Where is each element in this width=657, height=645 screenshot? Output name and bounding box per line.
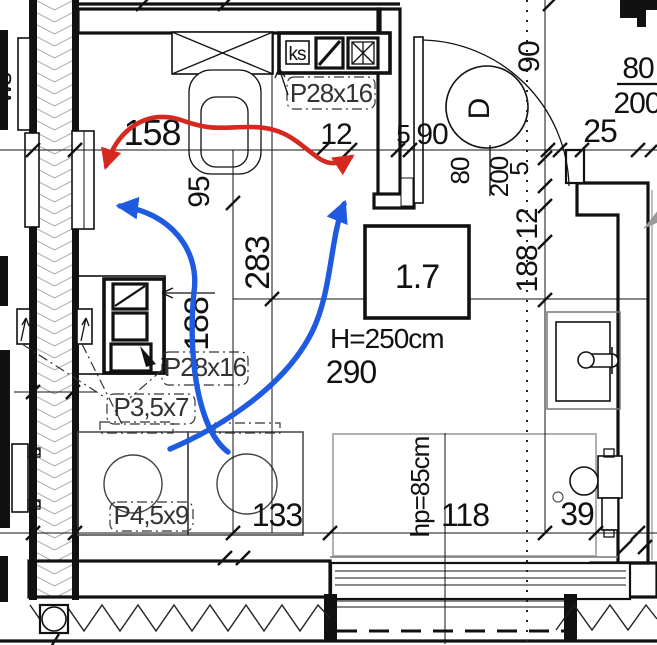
label-p28-mid: P28x16 — [164, 352, 247, 382]
dim-283: 283 — [239, 236, 277, 290]
window-frame — [331, 563, 630, 599]
left-room-frame — [18, 38, 30, 130]
room-height-label: H=250cm — [330, 323, 444, 354]
left-wall-core — [37, 0, 72, 600]
dim-290: 290 — [326, 354, 377, 390]
tr-size-200: 200 — [613, 87, 657, 120]
floor-plan-drawing: 1.7 H=250cm 290 158 12 5 90 25 80 200 90… — [0, 0, 657, 645]
bottom-window-zone — [0, 434, 657, 645]
door-size-80: 80 — [445, 157, 475, 184]
dim-133: 133 — [252, 497, 303, 533]
dim-5-top: 5 — [396, 119, 410, 149]
top-wall — [78, 9, 380, 33]
cistern — [172, 32, 273, 74]
dim-95: 95 — [183, 176, 216, 208]
label-p28-top: P28x16 — [290, 78, 373, 108]
insulation-zigzag-left — [30, 605, 330, 631]
room-number: 1.7 — [395, 258, 439, 296]
window-sill-label: hp=85cm — [405, 437, 435, 538]
dim-118: 118 — [441, 497, 489, 533]
door-dim-90: 90 — [513, 41, 546, 73]
dim-188-mid: 188 — [178, 297, 216, 351]
dim-12-top: 12 — [320, 118, 352, 151]
dim-39: 39 — [560, 496, 594, 532]
label-p45: P4,5x9 — [114, 500, 189, 530]
door-letter: D — [463, 98, 496, 119]
fixtures — [0, 30, 622, 602]
dim-188-right: 188 — [511, 245, 544, 292]
column-marker — [40, 605, 68, 633]
top-right-wall-piece — [620, 0, 657, 27]
label-ws: ws — [0, 72, 17, 104]
dim-12-right: 12 — [511, 208, 544, 240]
dim-5-right: 5 — [504, 162, 534, 176]
sink — [547, 312, 620, 409]
toilet — [189, 70, 261, 174]
window-bay-outline — [333, 434, 596, 556]
label-ks: ks — [289, 44, 307, 65]
tr-size-80: 80 — [622, 52, 654, 85]
label-p35: P3,5x7 — [114, 392, 189, 422]
gray-arrow — [643, 209, 657, 229]
duct-pointer-arrow — [162, 288, 215, 298]
dim-90-top: 90 — [416, 118, 448, 151]
window-post-left — [324, 594, 337, 642]
dim-25: 25 — [583, 113, 617, 149]
room-label: 1.7 H=250cm 290 — [326, 226, 469, 390]
left-wall-window-inner — [72, 131, 94, 229]
